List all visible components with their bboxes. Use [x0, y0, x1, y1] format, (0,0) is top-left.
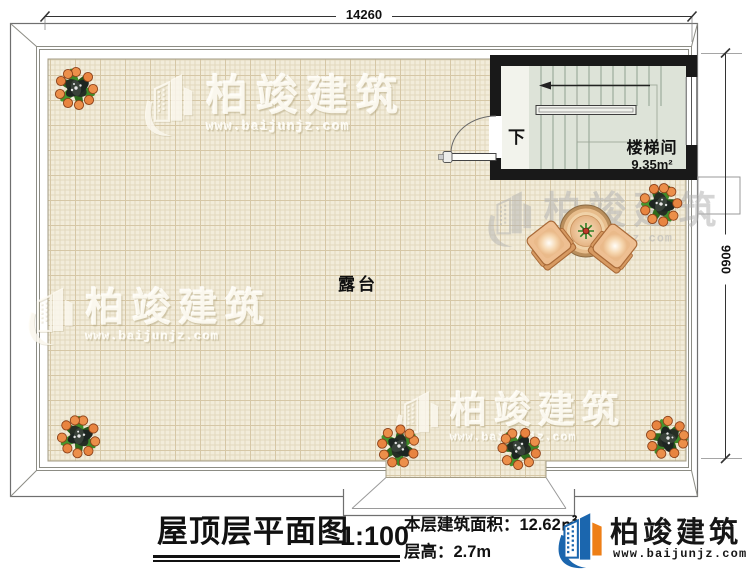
- potted-plant: [640, 411, 694, 465]
- terrace-label: 露台: [312, 276, 404, 293]
- drawing-scale: 1:100: [340, 523, 409, 550]
- potted-plant: [54, 411, 106, 463]
- drawing-title: 屋顶层平面图: [157, 516, 349, 547]
- brand-logo-icon: [554, 506, 610, 570]
- table-centerpiece: [578, 223, 594, 239]
- potted-plant: [55, 67, 97, 109]
- brand-name: 柏竣建筑: [610, 509, 742, 551]
- floor-height-label: 层高：2.7m: [404, 544, 491, 561]
- potted-plant: [372, 420, 426, 474]
- title-underline-thick: [153, 555, 400, 558]
- potted-plant: [631, 175, 690, 234]
- stair-down-label: 下: [508, 129, 525, 146]
- stairwell-area-label: 9.35m²: [597, 158, 707, 171]
- roof-floor-plan-canvas: 柏竣建筑 www.baijunjz.com 柏竣建筑 www.baijunjz.…: [0, 0, 750, 577]
- brand-logo: 柏竣建筑 www.baijunjz.com: [552, 503, 750, 573]
- title-underline-thin: [153, 560, 400, 562]
- brand-url: www.baijunjz.com: [613, 547, 747, 561]
- dimension-right-label: 9060: [719, 235, 734, 285]
- potted-plant: [492, 420, 548, 476]
- stairwell-name-label: 楼梯间: [597, 141, 707, 157]
- dimension-top-label: 14260: [336, 7, 392, 22]
